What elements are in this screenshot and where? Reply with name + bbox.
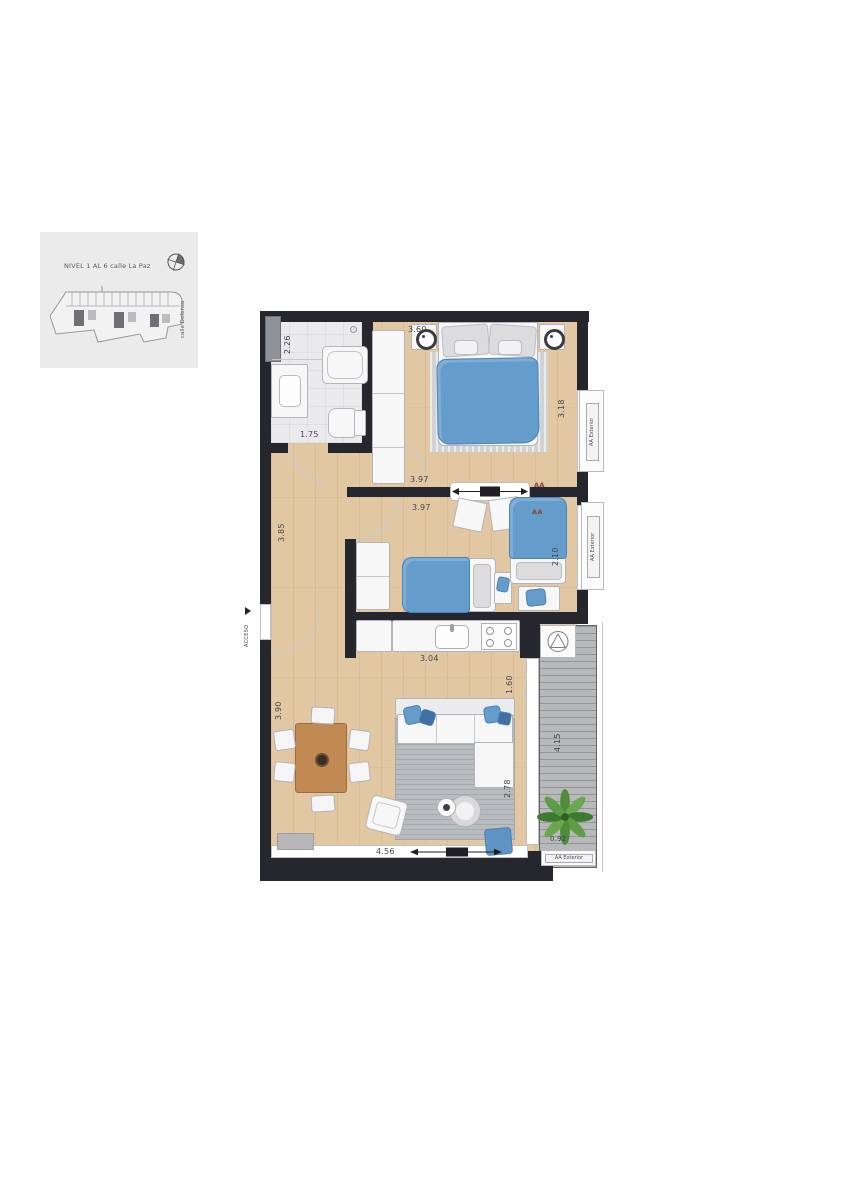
wardrobe-divider xyxy=(373,447,404,448)
dim-living-zone: 2.78 xyxy=(504,772,512,798)
toilet-tank xyxy=(354,410,366,436)
dim-living-depth: 3.90 xyxy=(275,694,283,720)
ac-exterior-unit-balcony: AA Exterior xyxy=(541,850,596,866)
kitchen-counter xyxy=(392,620,520,652)
blue-cushion xyxy=(496,576,510,593)
dim-bed1-depth: 3.18 xyxy=(558,392,566,418)
sideboard xyxy=(277,833,314,850)
dining-chair xyxy=(311,794,336,812)
dining-chair xyxy=(273,761,296,783)
dim-living-width: 4.56 xyxy=(376,848,395,856)
wall-bath-bottom-left xyxy=(271,443,288,453)
bed-blanket xyxy=(436,357,539,445)
bedroom1-wardrobe xyxy=(372,330,405,484)
bed-cushion xyxy=(454,340,478,355)
sliding-window-icon xyxy=(410,846,502,858)
dim-bed1-width: 3.60 xyxy=(408,326,427,334)
wall-kitchen-left xyxy=(345,612,356,658)
ac-exterior-label: AA Exterior xyxy=(586,403,599,461)
ac-exterior-label: AA Exterior xyxy=(545,854,593,863)
lamp-icon xyxy=(544,329,565,350)
wall-left-lower xyxy=(260,640,271,862)
toilet-bowl xyxy=(328,408,356,438)
wall-bedroom2-left xyxy=(345,539,356,614)
entrance-label: ACCESO xyxy=(244,617,250,647)
wall-right-a xyxy=(577,322,588,390)
dim-bed2-depth: 2.10 xyxy=(552,540,560,566)
entrance-opening xyxy=(260,604,271,640)
bathtub-inner xyxy=(327,351,363,379)
wardrobe-divider xyxy=(373,393,404,394)
sofa-seam xyxy=(436,715,437,743)
dim-bath-depth: 2.26 xyxy=(284,328,292,354)
wall-right-b xyxy=(577,472,588,505)
fridge xyxy=(356,620,392,652)
dim-bath-width: 1.75 xyxy=(300,431,319,439)
balcony-outer-line xyxy=(602,622,603,872)
wall-bath-bottom-right xyxy=(328,443,373,453)
ac-indoor-label: AA xyxy=(532,509,543,516)
wall-right-c xyxy=(577,590,588,624)
dim-kitchen-depth: 1.60 xyxy=(506,668,514,694)
armchair-cushion xyxy=(372,801,402,829)
dining-chair xyxy=(348,729,372,752)
wall-kitchen-right xyxy=(520,612,540,658)
bed-blanket xyxy=(402,557,470,613)
wall-bottom xyxy=(260,858,543,881)
keymap-street-label: calle Defensa xyxy=(180,286,186,338)
water-heater-box xyxy=(540,625,576,658)
dim-bed1-wall: 3.97 xyxy=(410,476,429,484)
bathroom-vanity xyxy=(271,364,308,418)
stove xyxy=(481,623,517,650)
coffee-table-top xyxy=(456,802,474,820)
apartment-floorplan: AA Exterior AA Exterior AA Exterior ACCE… xyxy=(258,306,610,886)
dining-chair xyxy=(348,761,371,783)
wall-top xyxy=(260,311,589,322)
sink-basin xyxy=(279,375,301,407)
faucet-icon xyxy=(450,624,454,632)
wardrobe-divider xyxy=(357,576,389,577)
kitchen-sink xyxy=(435,625,469,649)
table-centerpiece xyxy=(315,753,329,767)
dim-kitchen-width: 3.04 xyxy=(420,655,439,663)
dim-bed2-wall: 3.97 xyxy=(412,504,431,512)
ac-exterior-unit-1: AA Exterior xyxy=(579,390,604,472)
entrance-arrow-icon xyxy=(245,607,251,615)
sofa-pillow xyxy=(497,711,512,726)
water-heater-icon xyxy=(541,626,575,657)
bathtub xyxy=(322,346,368,384)
decor-item xyxy=(443,804,450,811)
keymap-title: NIVEL 1 AL 6 calle La Paz xyxy=(64,262,151,270)
location-keymap: NIVEL 1 AL 6 calle La Paz xyxy=(40,232,198,368)
dim-hall-depth: 3.85 xyxy=(278,516,286,542)
floor-cushion xyxy=(452,497,488,533)
shower-head-icon xyxy=(350,326,357,333)
ac-exterior-label: AA Exterior xyxy=(587,516,600,578)
bed-cushion xyxy=(498,340,522,355)
dim-balcony-width: 0.92 xyxy=(550,836,566,843)
ac-exterior-unit-2: AA Exterior xyxy=(581,502,604,590)
desk-chair xyxy=(525,588,547,607)
north-arrow-icon xyxy=(166,252,186,272)
building-footprint xyxy=(44,274,188,362)
dining-table xyxy=(295,723,347,793)
floorplan-page: NIVEL 1 AL 6 calle La Paz xyxy=(0,0,849,1200)
side-table xyxy=(437,798,456,817)
bed-pillow xyxy=(473,564,491,608)
dining-chair xyxy=(311,706,336,724)
dim-balcony-length: 4.15 xyxy=(554,726,562,752)
ac-indoor-label: AA xyxy=(534,482,545,489)
bedroom2-wardrobe xyxy=(356,542,390,610)
service-duct xyxy=(265,316,281,362)
dining-chair xyxy=(273,729,297,752)
sofa-seam xyxy=(474,715,475,743)
